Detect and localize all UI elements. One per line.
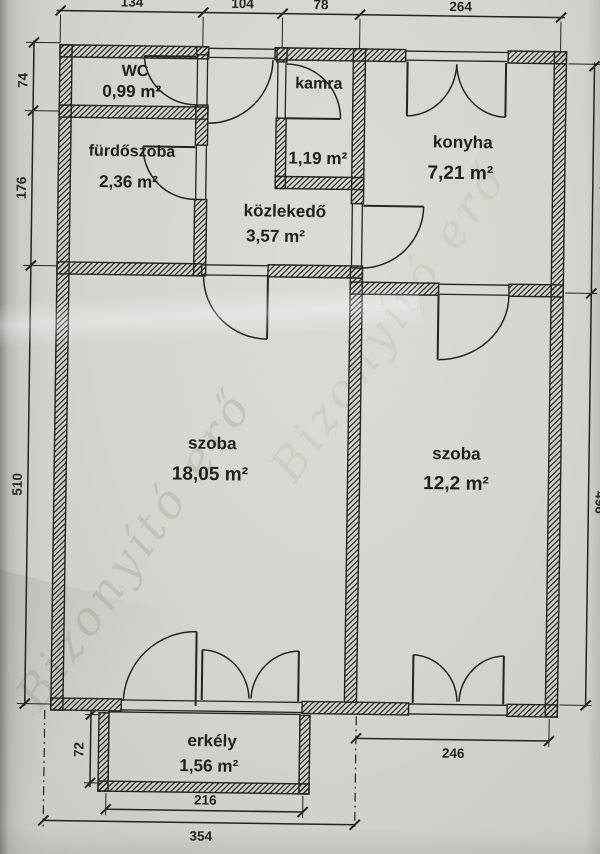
szoba-nagy-door-faces bbox=[202, 265, 268, 276]
wall-balcony-right bbox=[299, 715, 310, 794]
room-name-kamra: kamra bbox=[295, 74, 344, 93]
floorplan-tilt-wrapper: Bizonyító erő Bizonyító erő bbox=[0, 0, 600, 854]
konyha-window-arc-right bbox=[456, 64, 506, 117]
wall-bottom-right bbox=[507, 704, 557, 717]
konyha-door-faces bbox=[351, 204, 362, 268]
bottom-right-window-faces bbox=[409, 704, 508, 715]
floorplan-photo: Bizonyító erő Bizonyító erő bbox=[0, 0, 600, 854]
szoba-nagy-window-leaf-right bbox=[298, 651, 299, 701]
room-name-wc: WC bbox=[122, 62, 149, 80]
wall-outer-right bbox=[545, 52, 566, 717]
wall-central-a bbox=[351, 49, 365, 204]
room-area-kamra: 1,19 m² bbox=[288, 149, 347, 169]
wall-konyha-bottom-a bbox=[350, 282, 439, 295]
szoba-kis-door-leaf bbox=[438, 295, 439, 359]
entrance-threshold bbox=[209, 48, 275, 58]
dim-bottom-354: 354 bbox=[189, 829, 212, 844]
konyha-window-leaf-left bbox=[407, 62, 408, 116]
room-area-wc: 0,99 m² bbox=[102, 82, 161, 102]
room-name-furdoszoba: fürdőszoba bbox=[89, 142, 177, 161]
watermark: Bizonyító erő bbox=[4, 377, 264, 723]
dim-line-balcony bbox=[90, 711, 91, 787]
konyha-window-leaf-right bbox=[505, 63, 506, 117]
room-name-erkely: erkély bbox=[187, 731, 237, 751]
balcony-door-leaf bbox=[196, 632, 197, 706]
szoba-kis-window-leaf-right bbox=[503, 656, 504, 704]
szoba-kis-window-arc-right bbox=[459, 655, 504, 702]
dim-bottom-216: 216 bbox=[194, 792, 217, 807]
dim-right-496: 496 bbox=[592, 491, 600, 514]
szoba-nagy-window-leaf-left bbox=[202, 650, 203, 700]
konyha-window-arc-left bbox=[407, 64, 457, 117]
wall-konyha-bottom-b bbox=[509, 284, 563, 297]
watermark-text: Bizonyító erő bbox=[4, 380, 263, 720]
szoba-nagy-door-arc bbox=[203, 276, 268, 339]
wc-door-leaf bbox=[144, 56, 196, 57]
wall-wc-right-b bbox=[195, 105, 208, 145]
dim-left-510: 510 bbox=[10, 473, 25, 496]
konyha-door-leaf bbox=[363, 206, 423, 207]
wall-top-kamra bbox=[275, 48, 406, 62]
dim-line-top bbox=[57, 11, 565, 18]
dim-top-134: 134 bbox=[121, 0, 144, 10]
floorplan-svg: Bizonyító erő Bizonyító erő bbox=[0, 0, 600, 854]
room-area-szoba-nagy: 18,05 m² bbox=[172, 463, 249, 485]
room-name-szoba-nagy: szoba bbox=[188, 434, 237, 454]
konyha-window-frame bbox=[406, 51, 509, 61]
dim-top-264: 264 bbox=[449, 0, 472, 14]
room-area-erkely: 1,56 m² bbox=[179, 756, 238, 776]
kamra-door-faces bbox=[277, 62, 286, 118]
szoba-kis-door-faces bbox=[439, 284, 509, 295]
wall-furdo-bottom bbox=[57, 262, 202, 276]
room-area-furdoszoba: 2,36 m² bbox=[99, 172, 158, 192]
wall-wc-furdo bbox=[59, 105, 208, 119]
szoba-nagy-door-leaf bbox=[267, 277, 268, 339]
room-area-konyha: 7,21 m² bbox=[427, 163, 493, 185]
dim-left-74: 74 bbox=[15, 72, 30, 88]
dim-bottom-246: 246 bbox=[442, 746, 465, 761]
szoba-nagy-window-arc-left bbox=[202, 650, 250, 699]
room-name-szoba-kis: szoba bbox=[432, 444, 481, 464]
wall-szoba-nagy-top bbox=[268, 265, 363, 278]
dim-top-78: 78 bbox=[313, 0, 329, 12]
wc-door-faces bbox=[197, 55, 208, 105]
szoba-kis-window-leaf-left bbox=[413, 655, 414, 703]
dim-line-216 bbox=[106, 809, 303, 812]
room-name-konyha: konyha bbox=[433, 132, 494, 152]
wall-balcony-left bbox=[98, 713, 109, 792]
dim-left-176: 176 bbox=[14, 176, 29, 199]
dim-line-left bbox=[25, 40, 34, 705]
dim-line-right bbox=[586, 62, 595, 707]
wall-kamra-bottom bbox=[275, 176, 364, 189]
balcony-door-arc bbox=[123, 631, 196, 702]
room-area-szoba-kis: 12,2 m² bbox=[423, 473, 489, 495]
room-name-kozlekedo: közlekedő bbox=[244, 201, 327, 221]
wall-wc-right-a bbox=[197, 47, 209, 55]
szoba-kis-window-arc-left bbox=[413, 655, 458, 702]
szoba-nagy-window-arc-right bbox=[251, 650, 299, 699]
room-area-kozlekedo: 3,57 m² bbox=[246, 226, 305, 246]
bottom-left-opening-faces bbox=[121, 700, 302, 713]
dim-line-246 bbox=[356, 738, 549, 741]
kamra-door-leaf bbox=[286, 118, 340, 119]
szoba-kis-door-arc bbox=[438, 295, 509, 360]
wall-kamra-left-a bbox=[277, 48, 287, 62]
dim-balcony-72: 72 bbox=[71, 742, 86, 757]
dim-line-354 bbox=[43, 820, 355, 824]
wall-bottom-left bbox=[51, 698, 122, 711]
entrance-door-arc bbox=[208, 59, 273, 124]
furdo-door-faces bbox=[196, 145, 207, 199]
wall-bottom-mid bbox=[302, 701, 409, 715]
dim-top-104: 104 bbox=[231, 0, 254, 11]
